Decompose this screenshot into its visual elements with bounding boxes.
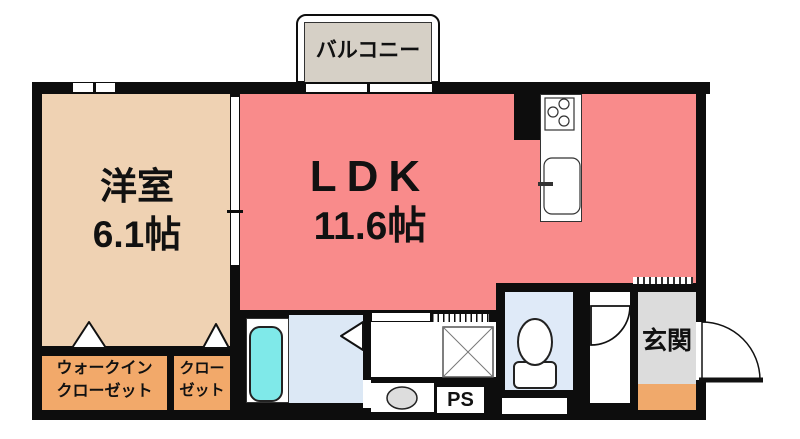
sliding-door-opening [231, 97, 239, 265]
hall-floor [590, 292, 630, 403]
wall-left [32, 82, 42, 420]
wall-toilet-top [496, 283, 700, 292]
washer-alcove-hatch [432, 314, 489, 322]
walk-in-closet-label: ウォークイン クローゼット [42, 357, 167, 403]
floor-plan: バルコニー 洋室 6.1帖 LDK 11.6帖 ウォークイン クローゼット クロ… [0, 0, 800, 439]
below-toilet-inset [502, 398, 567, 414]
entry-boundary-dashes [633, 277, 693, 284]
toilet-floor [505, 292, 573, 390]
wall-bottom-left [32, 410, 246, 420]
entrance-door-arc-icon [699, 322, 763, 380]
window-tick [93, 82, 96, 93]
wall-closet-divider [167, 356, 174, 410]
wall-right-lower [696, 380, 706, 420]
entrance-label: 玄関 [636, 327, 698, 356]
western-room-label: 洋室 6.1帖 [42, 163, 232, 259]
window-tick [367, 83, 370, 93]
wic-line2: クローゼット [42, 380, 167, 403]
kitchen-wall-stub [514, 94, 540, 140]
corridor-opening [372, 313, 430, 321]
bath-door-gap [363, 380, 371, 408]
wall-closet-top [32, 346, 240, 356]
bathtub-surround [246, 318, 289, 403]
bathroom-floor [289, 315, 363, 403]
wic-line1: ウォークイン [42, 357, 167, 380]
wall-hall-entrance [630, 292, 638, 420]
western-room-size: 6.1帖 [42, 211, 232, 259]
closet-line2: ゼット [174, 380, 230, 402]
entrance-step [638, 384, 696, 410]
closet-line1: クロー [174, 358, 230, 380]
washbasin-box [371, 383, 434, 412]
western-room-name: 洋室 [42, 163, 232, 211]
ldk-size: 11.6帖 [250, 202, 490, 252]
corridor-floor [371, 322, 496, 377]
ps-label: PS [437, 389, 484, 412]
balcony-label: バルコニー [296, 39, 440, 63]
ldk-name: LDK [250, 152, 490, 202]
ldk-label: LDK 11.6帖 [250, 152, 490, 252]
wall-hall-bottom [590, 403, 630, 420]
kitchen-counter [540, 94, 582, 222]
wall-toilet-hall [573, 292, 590, 420]
closet-label: クロー ゼット [174, 358, 230, 402]
wall-bath-right [363, 322, 371, 380]
wall-bath-bottom [240, 401, 371, 420]
